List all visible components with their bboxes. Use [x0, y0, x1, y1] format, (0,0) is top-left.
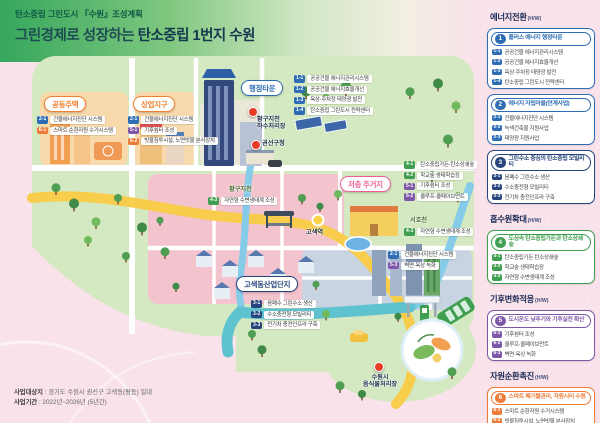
map-callout-low_rise_b: 2-1건물에너지진단 시스템5-3벽면·옥상 녹화 [388, 251, 456, 272]
callout-code-chip: 4-3 [404, 228, 415, 236]
place-label-gwonseon: 권선구청 [262, 140, 285, 147]
item-label: 벽면·옥상 녹화 [504, 350, 535, 358]
card-item: 5-3벽면·옥상 녹화 [492, 350, 591, 358]
callout-row: 2-1건물에너지진단 시스템 [388, 251, 456, 259]
callout-row: 1-3옥상·주차장 태양광 발전 [294, 96, 373, 104]
callout-code-chip: 4-3 [208, 197, 219, 205]
callout-row: 1-4탄소중립 그린도시 전략센터 [294, 107, 373, 115]
callout-row: 4-3자연형 수변생태계 조성 [404, 228, 473, 236]
section-header: 흡수원확대(H/W) [490, 209, 595, 227]
callout-label: 탄소중립가든·탄소상쇄숲 [417, 161, 477, 169]
card-item: 6-1스마트 순환자원 수거시스템 [492, 407, 591, 415]
callout-code-chip: 6-1 [37, 127, 48, 135]
callout-row: 2-1건물에너지진단 시스템 [128, 116, 218, 124]
footer: 사업대상지 : 경기도 수원시 권선구 고색동(평동) 일대 사업기간 : 20… [14, 388, 152, 408]
app-title: 그린경제로 성장하는 탄소중립 1번지 수원 [15, 24, 255, 45]
place-label-stream_hwanggu: 황구지천 [229, 186, 252, 193]
callout-code-chip: 1-4 [294, 107, 305, 115]
section-title: 에너지전환 [490, 12, 527, 22]
item-label: 공공건물 에너지관리시스템 [504, 48, 562, 56]
item-code-chip: 1-1 [492, 49, 502, 56]
footer-site-label: 사업대상지 [14, 389, 43, 396]
item-label: 스마트 순환자원 수거시스템 [504, 407, 564, 415]
callout-code-chip: 4-1 [404, 161, 415, 169]
card-item: 1-3옥상·주차장 태양광 발전 [492, 68, 591, 76]
item-label: 수소충전형 모빌리티 [504, 183, 548, 191]
section-header: 기후변화적응(H/W) [490, 289, 595, 307]
map-callout-seoho: 4-3자연형 수변생태계 조성 [404, 228, 473, 239]
callout-row: 3-3전기차 충전인프라 구축 [251, 321, 320, 329]
callout-label: 전기차 충전인프라 구축 [264, 321, 320, 329]
callout-label: 쿨루프·쿨페이브먼트 [417, 193, 467, 201]
card-item: 2-2녹색건축물 지원사업 [492, 124, 591, 132]
app-subtitle: 탄소중립 그린도시 『수원』조성계획 [15, 8, 255, 20]
item-label: 쿨루프·쿨페이브먼트 [504, 340, 548, 348]
callout-label: 기후쉼터 조성 [417, 182, 453, 190]
item-label: 학교숲 생태학습장 [504, 263, 543, 271]
callout-row: 5-1기후쉼터 조성 [404, 182, 477, 190]
callout-code-chip: 5-2 [404, 193, 415, 201]
item-label: 빗물침투시설, 노면빗물 분사장치 [504, 417, 574, 423]
card-title-text: 그린수소 중심의 탄소중립 모빌리티 [509, 156, 588, 170]
callout-label: 학교숲 생태학습장 [417, 172, 462, 180]
item-code-chip: 4-1 [492, 254, 502, 261]
callout-label: 기후쉼터 조성 [141, 127, 177, 135]
card-item: 4-3자연형 수변생태계 조성 [492, 273, 591, 281]
place-label-sewage: 황구지천하수처리장 [257, 116, 285, 131]
footer-period-label: 사업기간 [14, 399, 37, 406]
callout-code-chip: 1-1 [294, 75, 305, 83]
map-callout-low_rise: 4-1탄소중립가든·탄소상쇄숲4-2학교숲 생태학습장5-1기후쉼터 조성5-2… [404, 161, 477, 203]
callout-label: 자연형 수변생태계 조성 [221, 197, 277, 205]
card-title: 3그린수소 중심의 탄소중립 모빌리티 [491, 154, 591, 172]
app-title-regular: 그린경제로 성장하는 [15, 28, 138, 44]
callout-label: 빗물침투시설, 노면빗물 분사장치 [141, 137, 218, 145]
callout-row: 4-2학교숲 생태학습장 [404, 172, 477, 180]
place-label-foodwaste: 수원시음식물처리장 [352, 374, 408, 389]
callout-code-chip: 1-3 [294, 97, 305, 105]
sidebar-section: 기후변화적응(H/W)5도시온도 낮추기와 기후실천 확산5-1기후쉼터 조성5… [487, 289, 595, 361]
card-item: 4-2학교숲 생태학습장 [492, 263, 591, 271]
card-item: 4-1탄소중립가든·탄소상쇄숲 [492, 253, 591, 261]
item-label: 기후쉼터 조성 [504, 330, 534, 338]
callout-row: 5-2쿨루프·쿨페이브먼트 [404, 193, 477, 201]
marker-red-dot [248, 107, 258, 117]
card-number: 5 [495, 316, 506, 327]
map-pill-apartments: 공동주택 [44, 96, 86, 112]
sidebar-section: 에너지전환(H/W)1플러스 에너지 행정타운1-1공공건물 에너지관리시스템1… [487, 7, 595, 204]
card-item: 2-3태양광 지원사업 [492, 134, 591, 142]
map-callout-industrial: 3-1음폐수 그린수소 생산3-2수소충전형 모빌리티3-3전기차 충전인프라 … [251, 300, 320, 332]
item-code-chip: 2-1 [492, 115, 502, 122]
item-code-chip: 4-2 [492, 264, 502, 271]
item-code-chip: 4-3 [492, 274, 502, 281]
section-header: 에너지전환(H/W) [490, 7, 595, 25]
section-title: 자원순환촉진 [490, 371, 534, 381]
item-code-chip: 6-2 [492, 418, 502, 423]
item-label: 탄소중립가든·탄소상쇄숲 [504, 253, 558, 261]
map-panel: 탄소중립 그린도시 『수원』조성계획 그린경제로 성장하는 탄소중립 1번지 수… [0, 0, 480, 423]
card-title-text: 플러스 에너지 행정타운 [509, 35, 563, 42]
section-header: 자원순환촉진(H/W) [490, 366, 595, 384]
footer-period: 사업기간 : 2022년~2026년 (5년간) [14, 398, 152, 408]
callout-label: 음폐수 그린수소 생산 [264, 300, 315, 308]
item-code-chip: 1-4 [492, 79, 502, 86]
section-title: 흡수원확대 [490, 214, 527, 224]
card-item: 5-2쿨루프·쿨페이브먼트 [492, 340, 591, 348]
callout-row: 3-2수소충전형 모빌리티 [251, 311, 320, 319]
marker-red-dot [251, 140, 261, 150]
card-title: 5도시온도 낮추기와 기후실천 확산 [491, 314, 591, 329]
callout-label: 건물에너지진단 시스템 [141, 116, 196, 124]
item-label: 건물에너지진단 시스템 [504, 114, 553, 122]
card-title: 4도심속 탄소중립가든과 탄소상쇄숲 [491, 234, 591, 252]
card-number: 2 [495, 100, 506, 111]
callout-code-chip: 5-3 [388, 262, 399, 270]
card-item: 3-1음폐수 그린수소 생산 [492, 173, 591, 181]
callout-code-chip: 3-2 [251, 311, 262, 319]
callout-code-chip: 6-2 [128, 138, 139, 146]
program-card: 3그린수소 중심의 탄소중립 모빌리티3-1음폐수 그린수소 생산3-2수소충전… [487, 150, 595, 204]
item-code-chip: 2-2 [492, 125, 502, 132]
place-label-stream_seoho: 서호천 [410, 217, 427, 224]
card-title-text: 도시온도 낮추기와 기후실천 확산 [509, 317, 585, 324]
card-title: 2에너지 자립마을(연계사업) [491, 98, 591, 113]
app-title-bold: 탄소중립 1번지 수원 [138, 28, 255, 44]
card-title: 1플러스 에너지 행정타운 [491, 32, 591, 47]
callout-code-chip: 5-1 [128, 127, 139, 135]
section-tag: (H/W) [535, 298, 549, 304]
item-code-chip: 3-3 [492, 194, 502, 201]
callout-label: 스마트 순환자원 수거시스템 [50, 127, 116, 135]
card-item: 1-4탄소중립 그린도시 전략센터 [492, 78, 591, 86]
card-number: 1 [495, 34, 506, 45]
callout-label: 공공건물 에너지효율개선 [307, 86, 367, 94]
sidebar: 에너지전환(H/W)1플러스 에너지 행정타운1-1공공건물 에너지관리시스템1… [480, 0, 600, 423]
map-callout-apartments: 2-1건물에너지진단 시스템6-1스마트 순환자원 수거시스템 [37, 116, 116, 137]
callout-code-chip: 5-1 [404, 183, 415, 191]
map-callout-commercial: 2-1건물에너지진단 시스템5-1기후쉼터 조성6-2빗물침투시설, 노면빗물 … [128, 116, 218, 148]
infographic-poster: 탄소중립 그린도시 『수원』조성계획 그린경제로 성장하는 탄소중립 1번지 수… [0, 0, 600, 423]
card-number: 3 [495, 157, 506, 168]
callout-code-chip: 3-3 [251, 322, 262, 330]
callout-row: 5-3벽면·옥상 녹화 [388, 262, 456, 270]
program-card: 2에너지 자립마을(연계사업)2-1건물에너지진단 시스템2-2녹색건축물 지원… [487, 94, 595, 145]
callout-label: 건물에너지진단 시스템 [50, 116, 105, 124]
map-callout-hwanggu: 4-3자연형 수변생태계 조성 [208, 197, 277, 208]
item-label: 옥상·주차장 태양광 발전 [504, 68, 556, 76]
footer-site-value: : 경기도 수원시 권선구 고색동(평동) 일대 [43, 389, 152, 396]
item-code-chip: 5-2 [492, 341, 502, 348]
program-card: 4도심속 탄소중립가든과 탄소상쇄숲4-1탄소중립가든·탄소상쇄숲4-2학교숲 … [487, 230, 595, 284]
map-pill-low_rise: 저층 주거지 [340, 176, 391, 192]
card-title-text: 스마트 폐기물관리, 자원시티 수원 [509, 394, 586, 401]
callout-row: 6-1스마트 순환자원 수거시스템 [37, 127, 116, 135]
callout-code-chip: 1-2 [294, 86, 305, 94]
section-tag: (H/W) [535, 375, 549, 381]
item-label: 전기차 충전인프라 구축 [504, 193, 554, 201]
callout-row: 1-1공공건물 에너지관리시스템 [294, 75, 373, 83]
item-code-chip: 5-3 [492, 351, 502, 358]
section-tag: (H/W) [528, 16, 542, 22]
callout-row: 3-1음폐수 그린수소 생산 [251, 300, 320, 308]
card-item: 1-1공공건물 에너지관리시스템 [492, 48, 591, 56]
callout-label: 건물에너지진단 시스템 [401, 251, 456, 259]
card-title: 6스마트 폐기물관리, 자원시티 수원 [491, 391, 591, 406]
map-pill-admin_town: 행정타운 [241, 80, 283, 96]
item-label: 음폐수 그린수소 생산 [504, 173, 549, 181]
callout-label: 벽면·옥상 녹화 [401, 262, 438, 270]
callout-label: 자연형 수변생태계 조성 [417, 228, 473, 236]
place-label-station: 고색역 [306, 229, 323, 236]
callout-code-chip: 2-1 [37, 116, 48, 124]
card-item: 6-2빗물침투시설, 노면빗물 분사장치 [492, 417, 591, 423]
program-card: 6스마트 폐기물관리, 자원시티 수원6-1스마트 순환자원 수거시스템6-2빗… [487, 387, 595, 423]
callout-code-chip: 2-1 [388, 251, 399, 259]
item-label: 녹색건축물 지원사업 [504, 124, 548, 132]
item-code-chip: 3-2 [492, 184, 502, 191]
callout-label: 수소충전형 모빌리티 [264, 311, 314, 319]
item-label: 공공건물 에너지효율개선 [504, 58, 558, 66]
callout-row: 5-1기후쉼터 조성 [128, 127, 218, 135]
map-overlays: 공동주택상업지구행정타운저층 주거지고색동산업단지2-1건물에너지진단 시스템6… [0, 0, 480, 423]
item-label: 탄소중립 그린도시 전략센터 [504, 78, 564, 86]
callout-row: 6-2빗물침투시설, 노면빗물 분사장치 [128, 137, 218, 145]
map-pill-commercial: 상업지구 [133, 96, 175, 112]
footer-site: 사업대상지 : 경기도 수원시 권선구 고색동(평동) 일대 [14, 388, 152, 398]
card-title-text: 에너지 자립마을(연계사업) [509, 101, 570, 108]
map-callout-admin_town: 1-1공공건물 에너지관리시스템1-2공공건물 에너지효율개선1-3옥상·주차장… [294, 75, 373, 117]
program-card: 5도시온도 낮추기와 기후실천 확산5-1기후쉼터 조성5-2쿨루프·쿨페이브먼… [487, 310, 595, 361]
item-code-chip: 3-1 [492, 174, 502, 181]
callout-code-chip: 2-1 [128, 116, 139, 124]
callout-row: 4-3자연형 수변생태계 조성 [208, 197, 277, 205]
item-code-chip: 2-3 [492, 135, 502, 142]
card-item: 1-2공공건물 에너지효율개선 [492, 58, 591, 66]
card-item: 3-2수소충전형 모빌리티 [492, 183, 591, 191]
item-code-chip: 1-3 [492, 69, 502, 76]
callout-code-chip: 4-2 [404, 172, 415, 180]
callout-row: 1-2공공건물 에너지효율개선 [294, 86, 373, 94]
item-code-chip: 5-1 [492, 331, 502, 338]
callout-code-chip: 3-1 [251, 300, 262, 308]
section-title: 기후변화적응 [490, 294, 534, 304]
card-number: 4 [495, 237, 506, 248]
program-card: 1플러스 에너지 행정타운1-1공공건물 에너지관리시스템1-2공공건물 에너지… [487, 28, 595, 89]
sidebar-section: 자원순환촉진(H/W)6스마트 폐기물관리, 자원시티 수원6-1스마트 순환자… [487, 366, 595, 423]
map-pill-industrial: 고색동산업단지 [236, 276, 298, 292]
item-code-chip: 6-1 [492, 408, 502, 415]
item-code-chip: 1-2 [492, 59, 502, 66]
card-number: 6 [495, 393, 506, 404]
footer-period-value: : 2022년~2026년 (5년간) [37, 399, 107, 406]
section-tag: (H/W) [528, 218, 542, 224]
card-item: 5-1기후쉼터 조성 [492, 330, 591, 338]
callout-label: 공공건물 에너지관리시스템 [307, 75, 371, 83]
callout-label: 탄소중립 그린도시 전략센터 [307, 107, 373, 115]
sidebar-section: 흡수원확대(H/W)4도심속 탄소중립가든과 탄소상쇄숲4-1탄소중립가든·탄소… [487, 209, 595, 284]
callout-label: 옥상·주차장 태양광 발전 [307, 96, 365, 104]
callout-row: 4-1탄소중립가든·탄소상쇄숲 [404, 161, 477, 169]
item-label: 자연형 수변생태계 조성 [504, 273, 554, 281]
item-label: 태양광 지원사업 [504, 134, 539, 142]
marker-red-dot [374, 362, 384, 372]
card-title-text: 도심속 탄소중립가든과 탄소상쇄숲 [509, 236, 588, 250]
card-item: 2-1건물에너지진단 시스템 [492, 114, 591, 122]
callout-row: 2-1건물에너지진단 시스템 [37, 116, 116, 124]
card-item: 3-3전기차 충전인프라 구축 [492, 193, 591, 201]
